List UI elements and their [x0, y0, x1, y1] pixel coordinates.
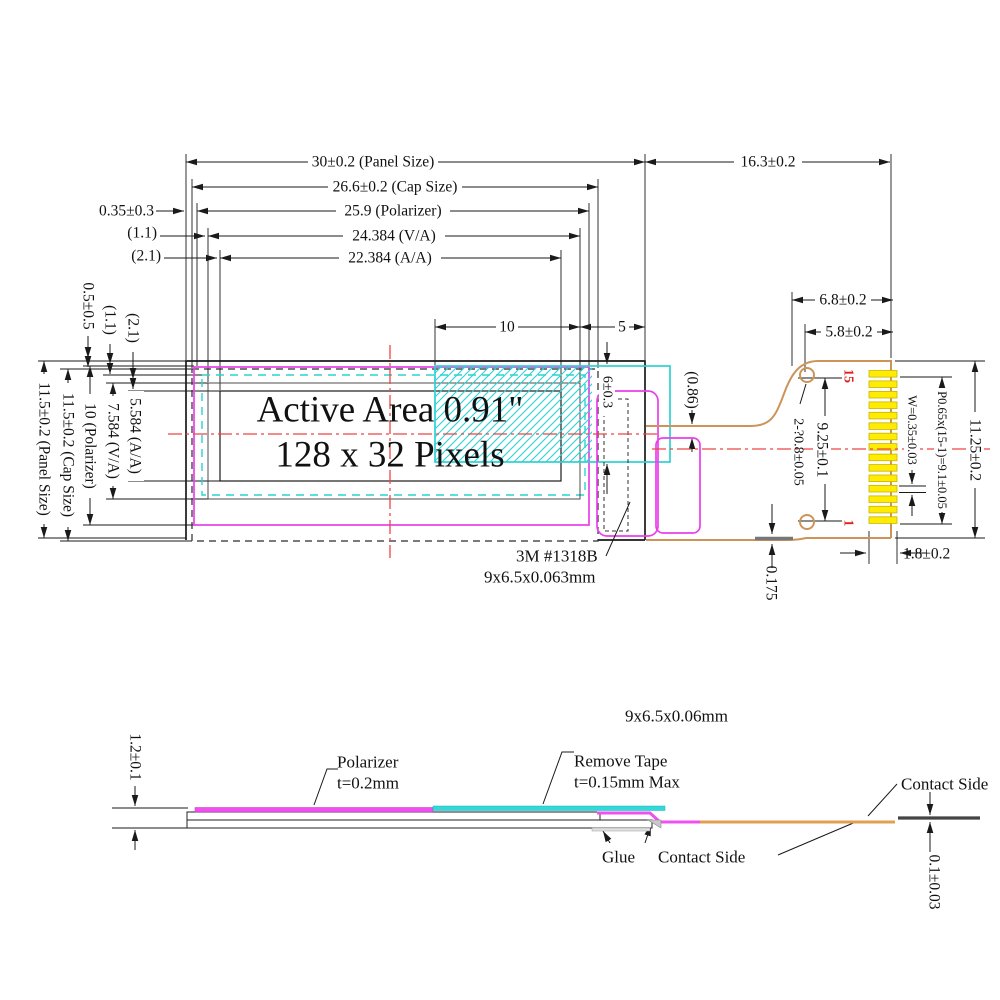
- polarizer-section: [195, 808, 433, 813]
- dim-offset-05: 0.5±0.5: [80, 282, 97, 330]
- dim-aa-width: 22.384 (A/A): [348, 250, 432, 267]
- connector-pin: [869, 475, 897, 482]
- dim-tape-5: 5: [618, 319, 626, 336]
- dim-fpc-thickness-section: 0.1±0.03: [926, 854, 943, 909]
- pin-15-label: 15: [841, 369, 856, 383]
- dim-polarizer-width: 25.9 (Polarizer): [344, 203, 441, 220]
- dim-offset-21-left: (2.1): [125, 313, 142, 343]
- dimension-lines: [44, 162, 975, 568]
- section-size-note: 9x6.5x0.06mm: [625, 707, 728, 726]
- dim-offset-035: 0.35±0.3: [99, 203, 154, 220]
- contact-side-top-label: Contact Side: [901, 775, 988, 794]
- dim-offset-11: (1.1): [127, 225, 157, 242]
- remove-tape-section: [433, 806, 665, 811]
- resolution-title: 128 x 32 Pixels: [275, 435, 504, 476]
- dim-panel-width: 30±0.2 (Panel Size): [312, 154, 435, 171]
- connector-pin: [869, 465, 897, 472]
- connector-pin: [869, 381, 897, 388]
- connector-pin: [869, 485, 897, 492]
- dim-fpc-neck2: 5.8±0.2: [825, 324, 872, 341]
- connector-pin: [869, 391, 897, 398]
- dim-pin-row-width: 1.8±0.2: [903, 546, 950, 563]
- dim-offset-21: (2.1): [131, 248, 161, 265]
- extension-lines: [38, 154, 985, 564]
- pin-1-label: 1: [841, 520, 856, 527]
- base-glass-section: [187, 820, 652, 828]
- connector-pin: [869, 517, 897, 524]
- remove-tape-label: Remove Tape: [574, 752, 667, 771]
- dim-pin-width: W=0.35±0.03: [905, 395, 919, 464]
- glue-layer: [592, 828, 650, 831]
- dim-fpc-thickness: 0.175: [763, 566, 780, 601]
- cap-glass-section: [187, 812, 600, 820]
- glue-label: Glue: [602, 848, 635, 867]
- dim-cap-height: 11.5±0.2 (Cap Size): [60, 393, 77, 517]
- dim-va-height: 7.584 (V/A): [105, 403, 122, 479]
- polarizer-label: Polarizer: [337, 753, 399, 772]
- connector-pin: [869, 496, 897, 503]
- dim-tape-10: 10: [499, 319, 515, 336]
- dim-tape-height: 6±0.3: [600, 376, 615, 408]
- dim-aa-height: 5.584 (A/A): [127, 398, 144, 474]
- dim-fpc-length: 16.3±0.2: [740, 154, 795, 171]
- connector-pin: [869, 423, 897, 430]
- connector-pin: [869, 371, 897, 378]
- dim-pin-pitch: P0.65x(15-1)=9.1±0.05: [935, 391, 949, 509]
- connector-pin: [869, 506, 897, 513]
- adhesive-tape-small: [656, 438, 700, 533]
- dim-conn-height: 11.25±0.2: [967, 419, 984, 481]
- dim-gap-086: (0.86): [684, 371, 701, 408]
- drawing-canvas: 30±0.2 (Panel Size) 16.3±0.2 26.6±0.2 (C…: [0, 0, 1000, 1000]
- contact-side-bottom-label: Contact Side: [658, 848, 745, 867]
- alignment-hole-top: [800, 368, 814, 382]
- dim-holes: 2-?0.8±0.05: [791, 418, 806, 486]
- connector-pin: [869, 402, 897, 409]
- oled-module-drawing: 30±0.2 (Panel Size) 16.3±0.2 26.6±0.2 (C…: [0, 0, 1000, 1000]
- dim-offset-11-left: (1.1): [102, 305, 119, 335]
- tape-note-line2: 9x6.5x0.063mm: [484, 568, 595, 587]
- connector-pins: [869, 371, 897, 524]
- dim-va-width: 24.384 (V/A): [352, 228, 436, 245]
- dim-panel-height: 11.5±0.2 (Panel Size): [36, 382, 53, 516]
- dim-cap-width: 26.6±0.2 (Cap Size): [333, 179, 458, 196]
- top-dimension-labels: 30±0.2 (Panel Size) 16.3±0.2 26.6±0.2 (C…: [99, 153, 877, 341]
- dim-fpc-neck: 6.8±0.2: [819, 292, 866, 309]
- dim-polarizer-height: 10 (Polarizer): [82, 403, 99, 489]
- dim-hole-pitch: 9.25±0.1: [814, 422, 831, 477]
- remove-tape-thickness-label: t=0.15mm Max: [574, 773, 680, 792]
- tape-note-line1: 3M #1318B: [516, 547, 598, 566]
- polarizer-thickness-label: t=0.2mm: [337, 774, 399, 793]
- connector-pin: [869, 433, 897, 440]
- active-area-title: Active Area 0.91": [257, 390, 524, 431]
- bond-area-dashed: [604, 399, 628, 531]
- cross-section-view: 1.2±0.1 0.1±0.03 9x6.5x0.06mm Polarizer …: [112, 707, 988, 910]
- connector-pin: [869, 412, 897, 419]
- alignment-hole-bottom: [800, 515, 814, 529]
- connector-pin: [869, 454, 897, 461]
- left-dimension-labels: 11.5±0.2 (Panel Size) 11.5±0.2 (Cap Size…: [35, 282, 144, 527]
- dim-stack-thickness: 1.2±0.1: [127, 733, 144, 780]
